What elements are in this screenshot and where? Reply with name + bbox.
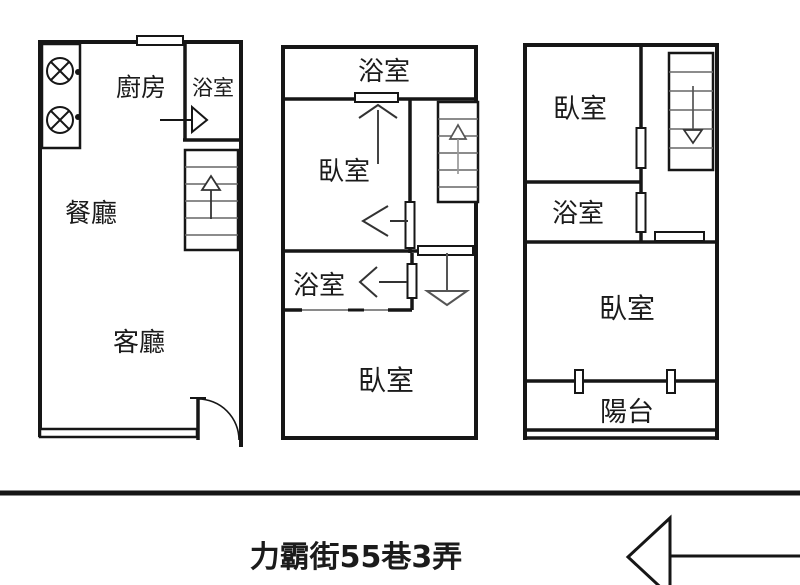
doorway-icon: [355, 93, 398, 102]
room-label-bedroom-front: 臥室: [553, 94, 607, 125]
room-label-bedroom-main: 臥室: [599, 292, 655, 325]
room-label-living: 客廳: [113, 328, 165, 358]
stairs: [438, 102, 478, 202]
window-icon: [655, 232, 704, 241]
door-arrow-icon: [363, 206, 408, 236]
floor-plan-canvas: 廚房 浴室 餐廳 客廳: [0, 0, 800, 585]
stairs: [669, 53, 713, 170]
street-section: 力霸街55巷3弄: [0, 493, 800, 585]
direction-arrow-icon: [628, 518, 800, 585]
door-swing-icon: [190, 398, 239, 440]
door-slot-icon: [637, 128, 646, 168]
room-label-bedroom: 臥室: [318, 157, 370, 187]
room-label-balcony: 陽台: [600, 397, 654, 428]
door-arrow-icon: [360, 267, 407, 297]
down-arrow-icon: [427, 253, 467, 305]
door-post-icon: [667, 370, 675, 393]
floor-plan-svg: 廚房 浴室 餐廳 客廳: [0, 0, 800, 585]
room-label-bathroom-top: 浴室: [358, 57, 410, 87]
room-label-bathroom: 浴室: [552, 199, 604, 229]
room-label-bathroom-mid: 浴室: [293, 271, 345, 301]
window-icon: [40, 429, 197, 437]
door-post-icon: [575, 370, 583, 393]
door-slot-icon: [406, 202, 415, 248]
room-label-bathroom: 浴室: [192, 76, 234, 100]
street-label: 力霸街55巷3弄: [250, 540, 463, 575]
room-label-kitchen: 廚房: [116, 73, 166, 102]
floor-1-plan: 廚房 浴室 餐廳 客廳: [38, 36, 243, 447]
room-label-bedroom-rear: 臥室: [358, 364, 414, 397]
up-arrow-icon: [359, 105, 397, 164]
room-label-dining: 餐廳: [65, 199, 117, 229]
window-icon: [137, 36, 183, 45]
floor-2-plan: 浴室 臥室 浴室 臥室: [281, 45, 478, 440]
window-icon: [418, 246, 473, 255]
door-slot-icon: [637, 193, 646, 232]
door-slot-icon: [408, 264, 417, 298]
floor-3-plan: 臥室 浴室 臥室 陽台: [523, 43, 719, 440]
floor-3-bottom-wall: [523, 430, 719, 438]
stairs: [185, 150, 238, 250]
